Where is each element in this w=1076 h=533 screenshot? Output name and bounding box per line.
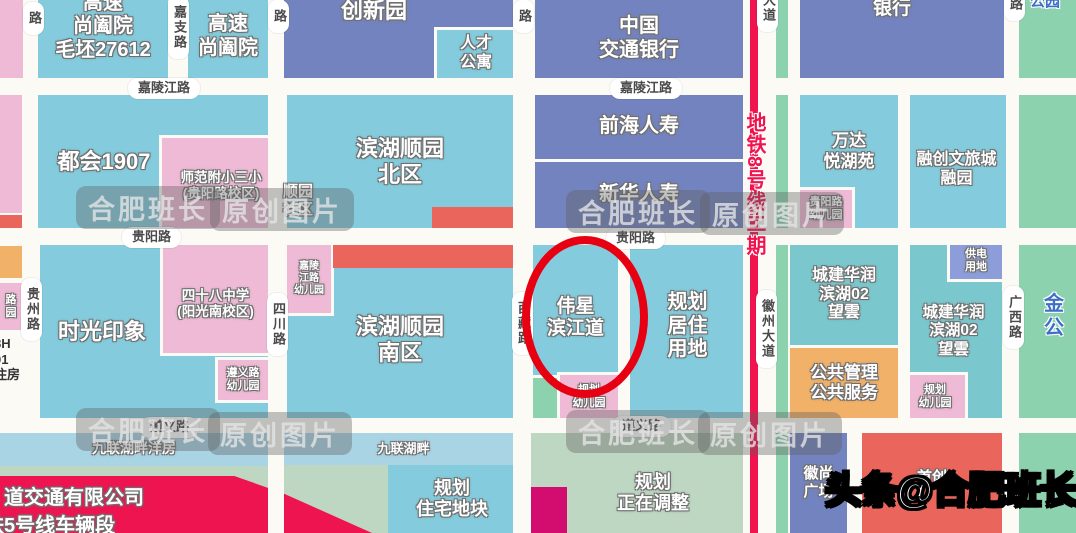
- watermark-wm-1a: 合肥班长: [76, 186, 220, 229]
- watermark-wm-2a: 合肥班长: [566, 190, 710, 233]
- watermark-wm-3a: 合肥班长: [76, 408, 220, 451]
- watermark-wm-4a: 合肥班长: [566, 410, 710, 453]
- watermark-wm-1b: 原创图片: [210, 188, 354, 231]
- map-canvas[interactable]: 路 园高速 尚阖院 毛坯27612高速 尚阖院创新园人才 公寓中国 交通银行银行…: [0, 0, 1076, 533]
- highlight-ellipse: [522, 236, 648, 398]
- byline-watermark: 头条@合肥班长: [825, 460, 1076, 514]
- watermark-wm-3b: 原创图片: [208, 412, 352, 455]
- watermark-wm-2b: 原创图片: [700, 192, 844, 235]
- watermark-wm-4b: 原创图片: [698, 412, 842, 455]
